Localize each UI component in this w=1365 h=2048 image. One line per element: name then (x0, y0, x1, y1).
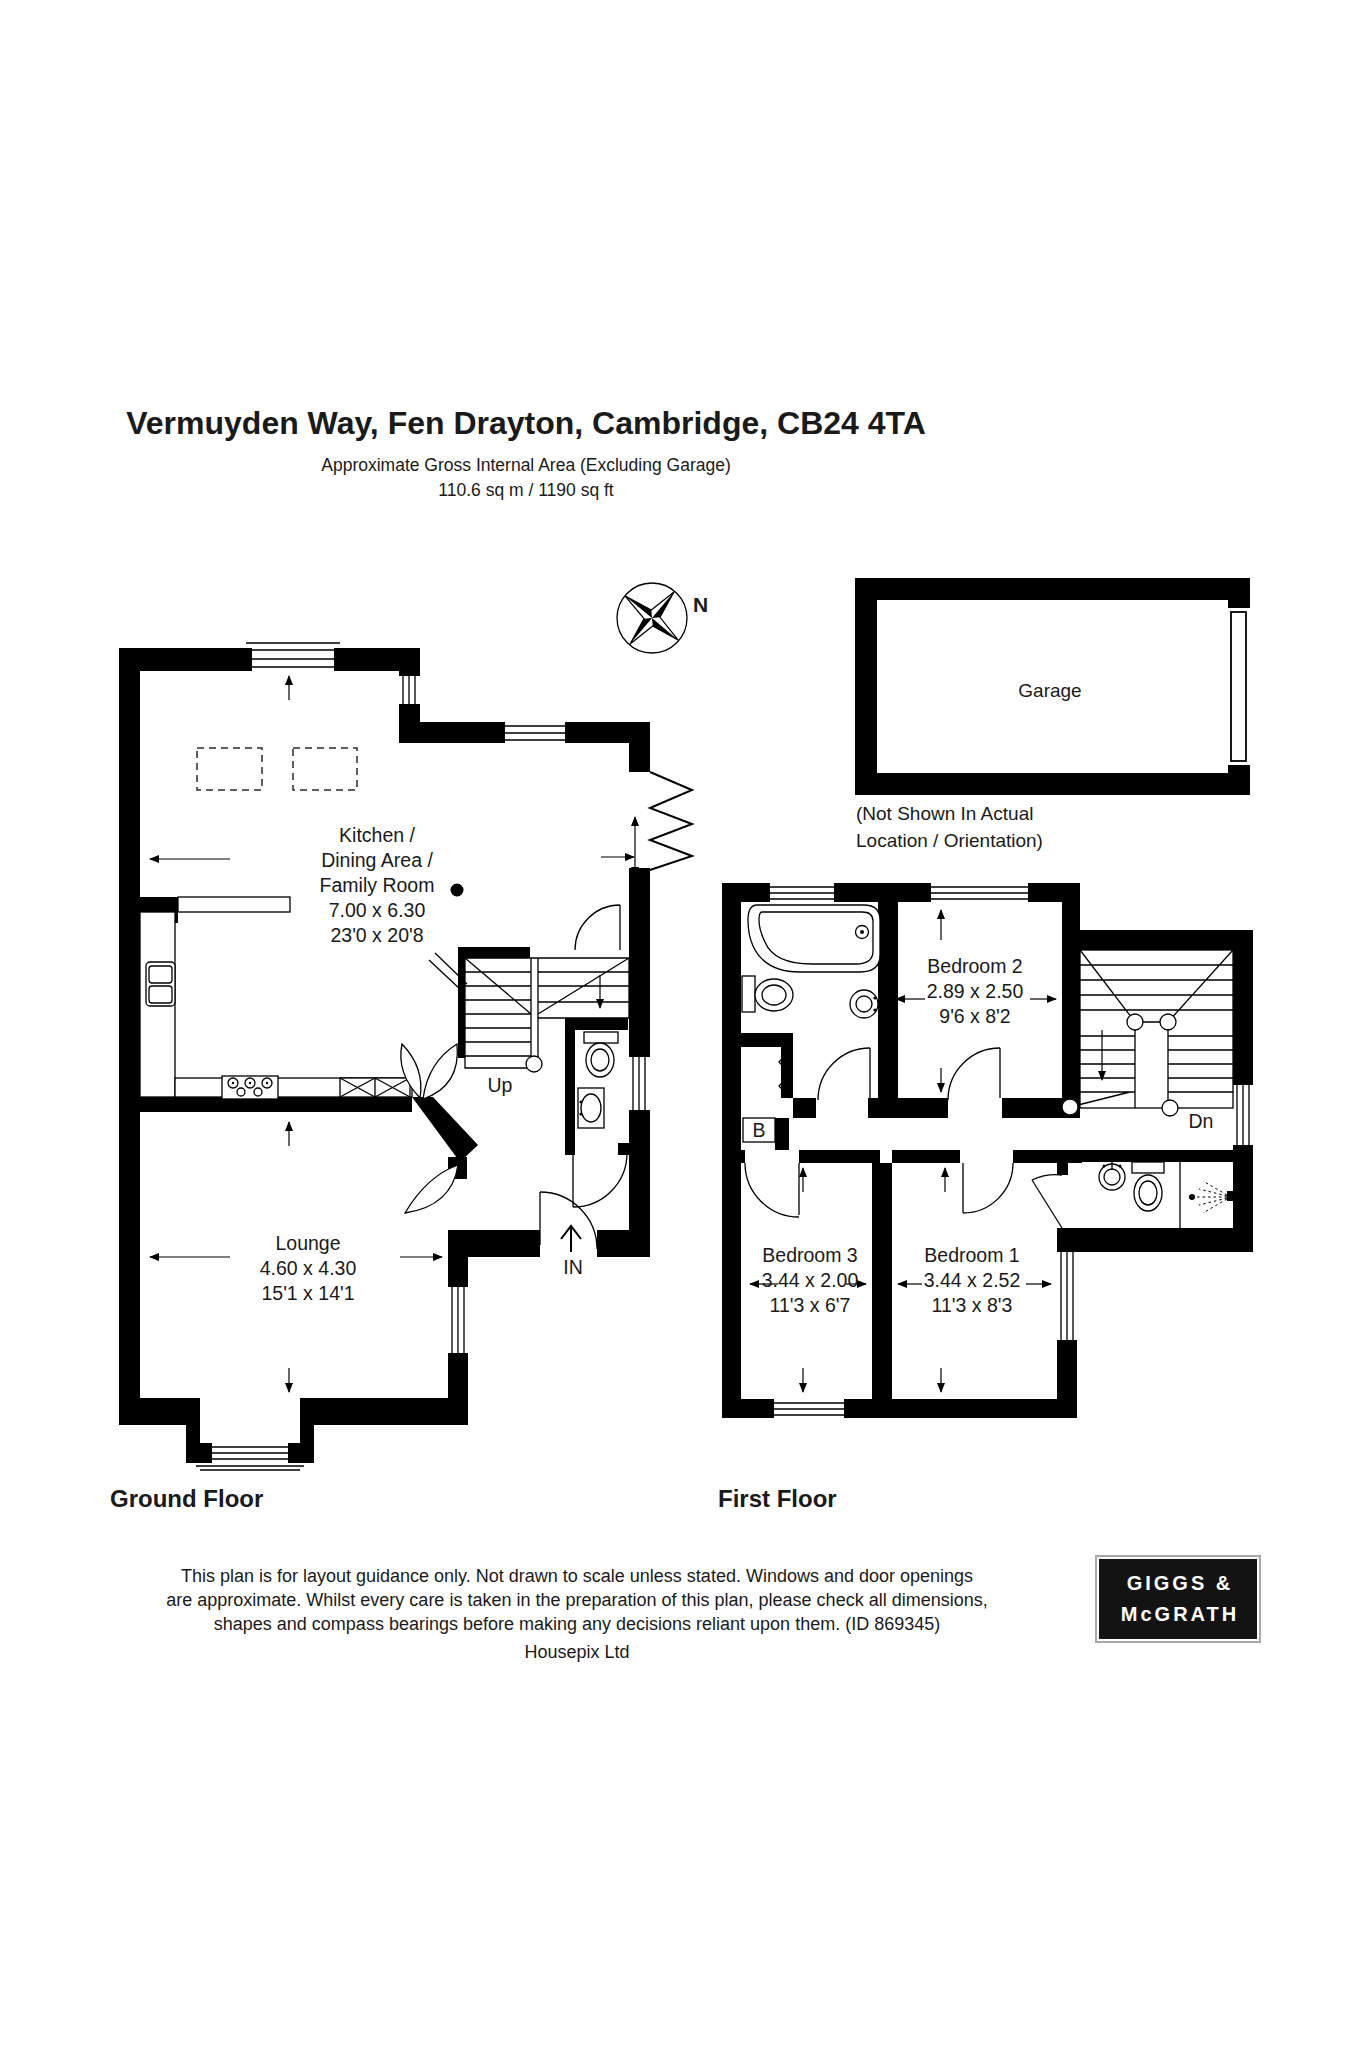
entrance-arrow-icon (561, 1226, 581, 1252)
window (629, 1057, 650, 1110)
toilet-icon (742, 976, 793, 1012)
kitchen-label-line2: Dining Area / (321, 849, 433, 871)
ground-floor-plan: Up (119, 641, 692, 1470)
area-text: 110.6 sq m / 1190 sq ft (438, 480, 614, 500)
kitchen-sink-icon (146, 962, 175, 1006)
door-arc (745, 1163, 799, 1217)
bedroom3-dims-imperial: 11'3 x 6'7 (770, 1294, 851, 1316)
door-arc (1032, 1175, 1062, 1228)
window (931, 883, 1028, 902)
disclaimer-line1: This plan is for layout guidance only. N… (181, 1566, 973, 1586)
window (1057, 1252, 1077, 1340)
toilet-icon (1132, 1162, 1164, 1211)
garage-plan: Garage (Not Shown In Actual Location / O… (855, 578, 1250, 851)
brand-logo: GIGGS & McGRATH (1096, 1556, 1260, 1642)
logo-line1: GIGGS & (1127, 1572, 1234, 1594)
lounge-name: Lounge (275, 1232, 340, 1254)
first-floor-plan: Dn B (722, 883, 1253, 1418)
window (399, 676, 420, 704)
bedroom2-label: Bedroom 2 2.89 x 2.50 9'6 x 8'2 (927, 955, 1024, 1027)
ensuite-fixtures (1099, 1162, 1233, 1228)
window (770, 883, 834, 902)
first-floor-caption: First Floor (718, 1485, 837, 1512)
logo-line2: McGRATH (1121, 1603, 1239, 1625)
sink-icon (1099, 1162, 1125, 1190)
north-label: N (693, 593, 708, 616)
window (505, 722, 565, 743)
ground-floor-caption: Ground Floor (110, 1485, 263, 1512)
up-label: Up (488, 1074, 513, 1096)
window (1233, 1085, 1253, 1145)
toilet-icon (584, 1032, 618, 1077)
page-title: Vermuyden Way, Fen Drayton, Cambridge, C… (126, 405, 926, 441)
credit-text: Housepix Ltd (524, 1642, 629, 1662)
door-arc (575, 905, 620, 950)
in-label: IN (563, 1256, 583, 1278)
bay-window (196, 1447, 304, 1470)
window (246, 641, 340, 672)
subtitle: Approximate Gross Internal Area (Excludi… (321, 455, 731, 475)
window (774, 1399, 844, 1418)
bedroom2-dims-imperial: 9'6 x 8'2 (939, 1005, 1010, 1027)
window (448, 1287, 468, 1353)
down-label: Dn (1189, 1110, 1214, 1132)
door-arc (963, 1163, 1013, 1213)
kitchen-label-line1: Kitchen / (339, 824, 415, 846)
door-arc (818, 1048, 870, 1100)
door-arc (405, 1165, 458, 1213)
column-dot (451, 884, 464, 897)
bifold-door-icon (650, 772, 692, 870)
sink-icon (578, 1088, 604, 1128)
bedroom3-label: Bedroom 3 3.44 x 2.00 11'3 x 6'7 (762, 1244, 859, 1316)
bedroom1-name: Bedroom 1 (924, 1244, 1019, 1266)
skylight-dashed (197, 748, 262, 790)
disclaimer-line3: shapes and compass bearings before makin… (214, 1614, 940, 1634)
bedroom1-dims-imperial: 11'3 x 8'3 (932, 1294, 1013, 1316)
bedroom1-label: Bedroom 1 3.44 x 2.52 11'3 x 8'3 (924, 1244, 1021, 1316)
bath-icon (748, 905, 880, 972)
door-arc (948, 1048, 1000, 1100)
entrance-door-arc (540, 1192, 597, 1249)
garage-note-line1: (Not Shown In Actual (856, 803, 1033, 824)
header-block: Vermuyden Way, Fen Drayton, Cambridge, C… (126, 405, 926, 500)
kitchen-dims-metric: 7.00 x 6.30 (329, 899, 426, 921)
hob-icon (222, 1076, 278, 1099)
bedroom1-dims-metric: 3.44 x 2.52 (924, 1269, 1021, 1291)
compass-icon: N (617, 583, 708, 653)
kitchen-label-line3: Family Room (320, 874, 435, 896)
stairs-icon (1062, 950, 1233, 1116)
garage-label: Garage (1018, 680, 1081, 701)
boiler-label: B (752, 1119, 765, 1141)
shower-icon (1189, 1181, 1233, 1213)
disclaimer-line2: are approximate. Whilst every care is ta… (166, 1590, 987, 1610)
garage-door (1231, 612, 1246, 761)
disclaimer-block: This plan is for layout guidance only. N… (166, 1566, 987, 1662)
kitchen-unit-crossed (340, 1078, 410, 1097)
sink-icon (850, 990, 878, 1018)
floorplan-canvas: Vermuyden Way, Fen Drayton, Cambridge, C… (0, 0, 1365, 2048)
kitchen-dims-imperial: 23'0 x 20'8 (330, 924, 423, 946)
bedroom2-name: Bedroom 2 (927, 955, 1022, 977)
garage-note-line2: Location / Orientation) (856, 830, 1043, 851)
ground-floor-walls (119, 648, 650, 1463)
skylight-dashed (293, 748, 357, 790)
dimension-arrows (150, 676, 635, 1392)
door-arc (573, 1152, 627, 1207)
bedroom2-dims-metric: 2.89 x 2.50 (927, 980, 1024, 1002)
bedroom3-name: Bedroom 3 (762, 1244, 857, 1266)
lounge-dims-metric: 4.60 x 4.30 (260, 1257, 357, 1279)
lounge-label: Lounge 4.60 x 4.30 15'1 x 14'1 (260, 1232, 357, 1304)
kitchen-label: Kitchen / Dining Area / Family Room 7.00… (320, 824, 435, 946)
lounge-dims-imperial: 15'1 x 14'1 (261, 1282, 354, 1304)
bedroom3-dims-metric: 3.44 x 2.00 (762, 1269, 859, 1291)
